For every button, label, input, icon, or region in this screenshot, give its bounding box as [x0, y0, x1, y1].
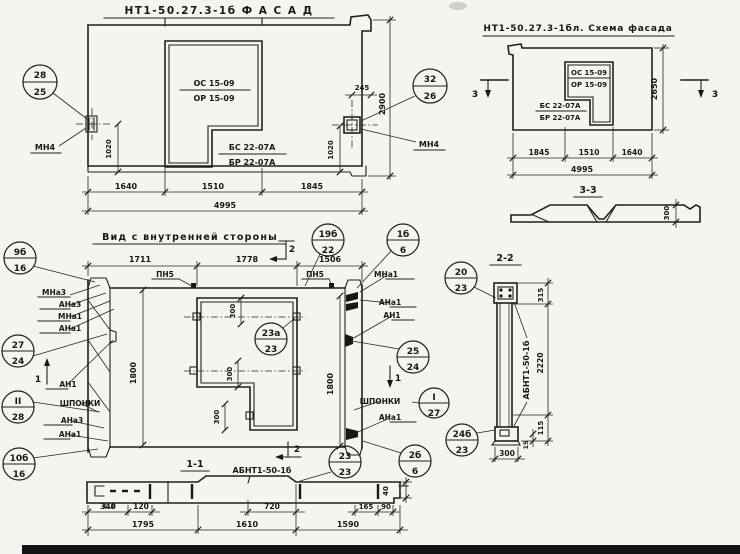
section22-dims: 315 2220 115 15 300 [489, 278, 553, 462]
callout-27-24-top: 27 [12, 341, 25, 351]
dim-1510: 1510 [202, 182, 225, 191]
callout-9b-16-top: 9б [14, 247, 27, 258]
callout-2b-6-bottom: 6 [412, 467, 418, 477]
callout-24b-23-top: 24б [453, 429, 472, 440]
callout-27-24: 27 24 [2, 334, 107, 367]
schema-br-label: БР 22-07А [540, 114, 581, 122]
label-ana3-top: АНа3 [59, 300, 81, 309]
facade-os-label: ОС 15-09 [193, 79, 234, 88]
scan-smudge [449, 2, 467, 10]
section33-ref: 3-3 [579, 185, 596, 196]
schema-bs-label: БС 22-07А [540, 102, 581, 110]
callout-20-23: 20 23 [445, 262, 496, 298]
callout-1b-6-bottom: 6 [400, 246, 406, 256]
callout-23a-23-top: 23а [262, 329, 281, 339]
section11-view: 2 1-1 АБНТ1-50-1б 23 23 [82, 442, 412, 536]
section22-top-node [494, 283, 517, 303]
dim-1020-left: 1020 [105, 139, 113, 159]
callout-28-25: 28 25 [23, 65, 87, 119]
callout-27-24-bottom: 24 [12, 357, 25, 367]
callout-I-27-bottom: 27 [428, 409, 441, 419]
schema-view: НТ1-50.27.3-1бл. Схема фасада ОС 15-09 О… [472, 23, 718, 197]
dim-2900: 2900 [378, 92, 387, 115]
callout-II-28-top: II [15, 397, 22, 407]
callout-23-23-top: 23 [339, 452, 352, 462]
internal-top-dims: 1711 1778 1506 [82, 255, 368, 286]
dim-15: 15 [522, 440, 530, 450]
callout-9b-16: 9б 16 [4, 242, 95, 282]
callout-25-24-bottom: 24 [407, 363, 420, 373]
dim-1510-s: 1510 [579, 148, 600, 157]
embed-plate-right [332, 100, 378, 148]
section1-marker-right: 1 [387, 366, 401, 388]
callout-24b-23: 24б 23 [446, 424, 495, 456]
label-ana3-bottom: АНа3 [61, 416, 83, 425]
callout-20-23-top: 20 [455, 268, 468, 278]
callout-23-23-bottom: 23 [339, 468, 352, 478]
label-mna3-top: МНа3 [42, 288, 66, 297]
internal-view: Вид с внутренней стороны [2, 224, 449, 480]
label-mna1-right: МНа1 [374, 270, 398, 279]
dim-165: 165 [359, 503, 374, 511]
callout-I-27-top: I [432, 393, 435, 403]
schema-bottom-dims: 1845 1510 1640 4995 [507, 127, 658, 179]
dim-40: 40 [382, 486, 390, 496]
facade-bottom-dims: 1640 1510 1845 4995 [82, 168, 368, 215]
dim-1020-right: 1020 [327, 140, 335, 160]
blueprint-sheet: НТ1-50.27.3-1б Ф А С А Д ОС 15-09 ОР 15-… [0, 0, 740, 554]
dim-1845: 1845 [301, 182, 324, 191]
facade-title: НТ1-50.27.3-1б Ф А С А Д [124, 5, 313, 17]
facade-bs-label: БС 22-07А [229, 143, 276, 152]
schema-title: НТ1-50.27.3-1бл. Схема фасада [483, 23, 672, 34]
mn4-left-label: МН4 [35, 143, 56, 152]
mn4-right-label: МН4 [419, 140, 440, 149]
section2-bottom-label: 2 [294, 445, 300, 455]
callout-24b-23-bottom: 23 [456, 446, 469, 456]
internal-title: Вид с внутренней стороны [102, 232, 278, 243]
callout-10b-16-bottom: 16 [13, 470, 26, 480]
dim-1845-s: 1845 [529, 148, 550, 157]
callout-23a-23-bottom: 23 [265, 345, 278, 355]
dim-1800-right: 1800 [326, 372, 335, 395]
callout-28-25-bottom: 25 [34, 88, 47, 98]
section33-view: 300 [511, 199, 700, 228]
section22-part-label: АБНТ1-50-1б [521, 340, 531, 399]
section22-title: 2-2 [496, 253, 513, 264]
schema-or-label: ОР 15-09 [571, 81, 607, 89]
facade-or-label: ОР 15-09 [193, 94, 234, 103]
callout-25-24-top: 25 [407, 347, 420, 357]
section22-bottom-node [492, 427, 520, 445]
dim-90: 90 [381, 503, 391, 511]
facade-br-label: БР 22-07А [229, 158, 276, 167]
callout-10b-16-top: 10б [10, 453, 29, 464]
callout-1b-6-top: 1б [397, 229, 410, 240]
callout-23a-23: 23а 23 [255, 318, 295, 355]
section1-left-label: 1 [35, 375, 41, 385]
label-ana1-bottom: АНа1 [59, 430, 81, 439]
dim-300-b: 300 [226, 367, 234, 382]
section3-right-label: 3 [712, 90, 718, 100]
section3-marker-left: 3 [472, 80, 508, 100]
facade-view: НТ1-50.27.3-1б Ф А С А Д ОС 15-09 ОР 15-… [23, 5, 447, 215]
callout-32-26-bottom: 26 [424, 92, 437, 102]
callout-20-23-bottom: 23 [455, 284, 468, 294]
dim-1778: 1778 [236, 255, 259, 264]
callout-9b-16-bottom: 16 [14, 264, 27, 274]
callout-I-27: I 27 [412, 388, 449, 419]
dim-4995-facade: 4995 [214, 201, 237, 210]
dim-2650: 2650 [650, 77, 659, 100]
label-an1-right: АН1 [383, 311, 400, 320]
dim-245: 245 [355, 84, 370, 92]
internal-opening [184, 298, 306, 430]
dim-4995-schema: 4995 [571, 165, 594, 174]
dim-1795: 1795 [132, 520, 155, 529]
callout-28-25-top: 28 [34, 71, 47, 81]
dim-1640: 1640 [115, 182, 138, 191]
callout-10b-16: 10б 16 [3, 448, 98, 480]
dim-300-s33: 300 [663, 206, 671, 221]
dim-1610: 1610 [236, 520, 259, 529]
section3-marker-right: 3 [681, 80, 718, 100]
section2-marker-bottom: 2 [275, 442, 301, 460]
dim-340: 340 [100, 502, 116, 511]
label-shponki-right: ШПОНКИ [360, 397, 401, 406]
dim-120: 120 [133, 502, 149, 511]
label-an1-left: АН1 [59, 380, 76, 389]
dim-115: 115 [537, 421, 545, 436]
dim-315: 315 [537, 288, 545, 303]
callout-19b-22-top: 19б [319, 229, 338, 240]
dim-1711: 1711 [129, 255, 152, 264]
dim-1800-left: 1800 [129, 361, 138, 384]
section11-title: 1-1 [186, 459, 203, 470]
label-ana1-right-bottom: АНа1 [379, 413, 401, 422]
section2-top-label: 2 [289, 245, 295, 255]
section1-right-label: 1 [395, 374, 401, 384]
callout-19b-22-bottom: 22 [322, 246, 335, 256]
dim-300-c: 300 [213, 410, 221, 425]
internal-left-labels: МНа3 АНа3 МНа1 АНа1 АН1 ШПОНКИ АНа3 АНа1 [38, 285, 114, 441]
embed-plate-left [76, 108, 112, 140]
dim-300-s22: 300 [499, 449, 515, 458]
scan-bottom-bar [22, 545, 740, 554]
dim-1590: 1590 [337, 520, 360, 529]
section22-view: 2-2 20 23 АБНТ1-50-1б [445, 253, 553, 462]
section11-part-label: АБНТ1-50-1б [233, 465, 292, 475]
dim-1640-s: 1640 [622, 148, 643, 157]
callout-23-23: 23 23 [300, 446, 361, 481]
dim-720: 720 [264, 502, 280, 511]
schema-os-label: ОС 15-09 [571, 69, 607, 77]
dim-2220: 2220 [536, 353, 545, 374]
pn5-label-1: ПН5 [156, 270, 174, 279]
callout-2b-6-top: 2б [409, 450, 422, 461]
section1-marker-left: 1 [35, 358, 50, 385]
dim-300-a: 300 [229, 304, 237, 319]
section3-left-label: 3 [472, 90, 478, 100]
callout-32-26-top: 32 [424, 75, 437, 85]
callout-2b-6: 2б 6 [363, 441, 431, 477]
callout-II-28-bottom: 28 [12, 413, 25, 423]
